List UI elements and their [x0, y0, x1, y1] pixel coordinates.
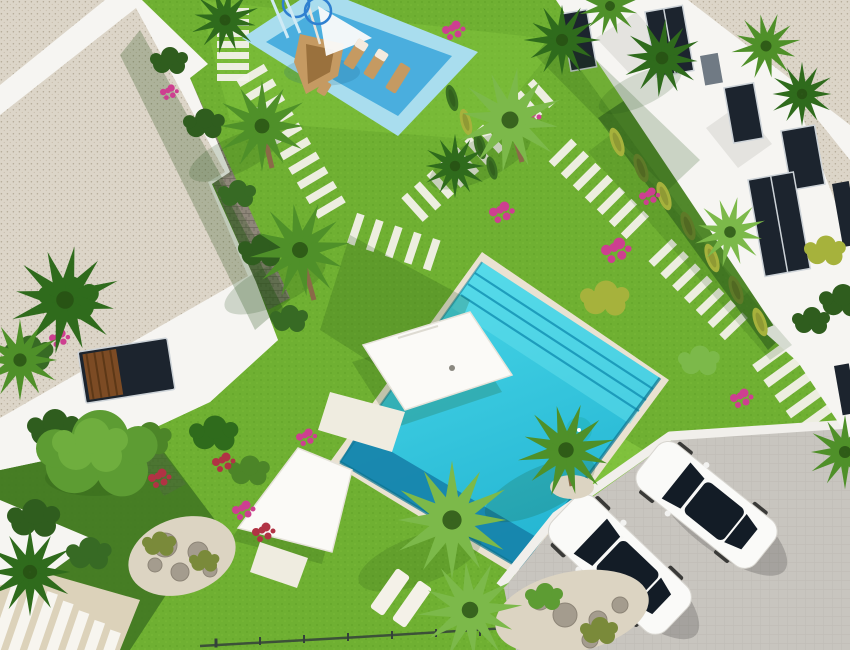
render-canvas: [0, 0, 850, 650]
aerial-render: [0, 0, 850, 650]
